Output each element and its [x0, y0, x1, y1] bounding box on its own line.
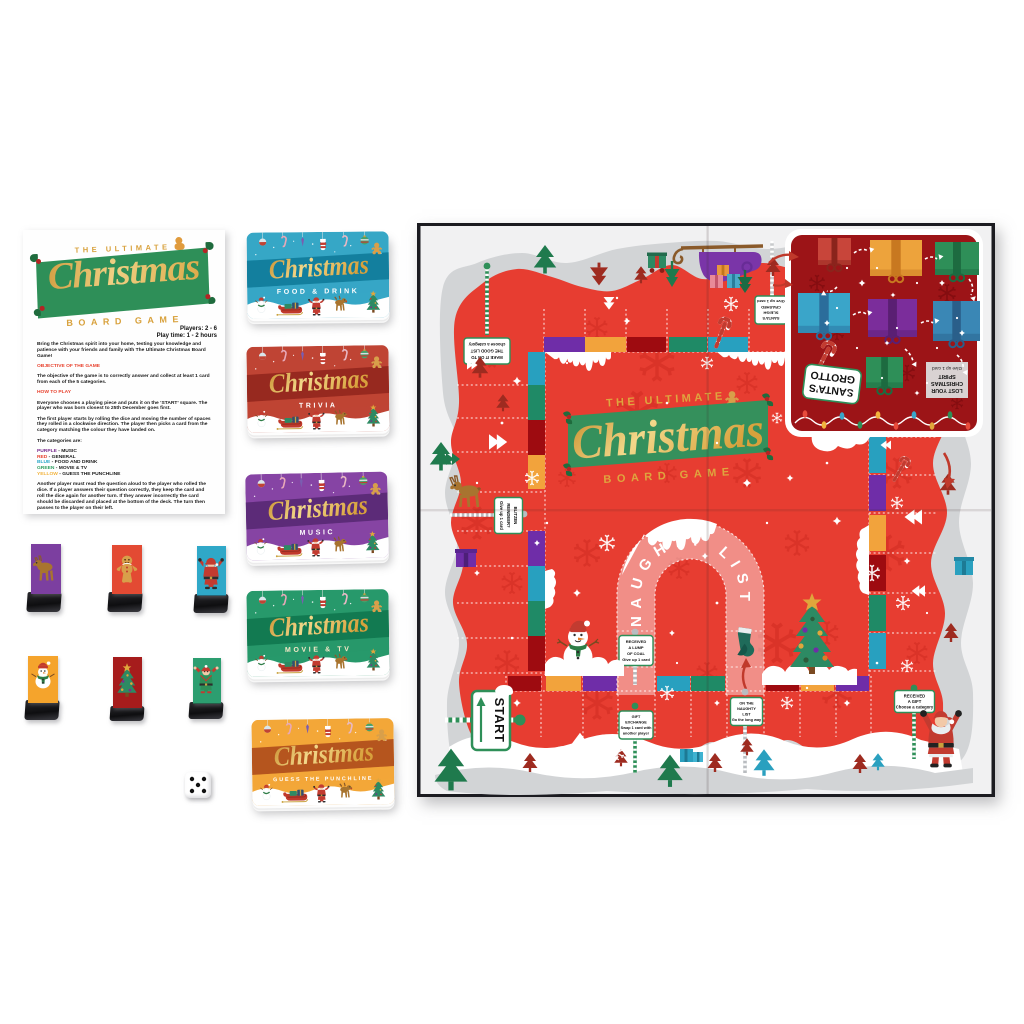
svg-text:Christmas: Christmas — [268, 363, 370, 399]
svg-text:START: START — [492, 698, 507, 743]
svg-text:another player: another player — [623, 732, 650, 736]
svg-text:Give up 1 card: Give up 1 card — [499, 501, 504, 530]
svg-text:LOST YOUR: LOST YOUR — [931, 387, 962, 393]
svg-text:ON THE: ON THE — [739, 701, 754, 705]
svg-text:TRIVIA: TRIVIA — [299, 402, 338, 410]
svg-text:A GIFT: A GIFT — [908, 699, 922, 704]
svg-text:FOOD & DRINK: FOOD & DRINK — [277, 288, 360, 296]
svg-text:MAKE IT ON TO: MAKE IT ON TO — [470, 355, 502, 360]
svg-text:LIST: LIST — [742, 713, 751, 717]
svg-text:THE GOOD LIST: THE GOOD LIST — [470, 349, 503, 354]
svg-text:RECEIVED: RECEIVED — [626, 639, 647, 644]
svg-text:SPIRIT: SPIRIT — [938, 373, 956, 379]
svg-text:Christmas: Christmas — [268, 607, 370, 643]
svg-text:Choose a category: Choose a category — [896, 705, 934, 710]
svg-text:Christmas: Christmas — [273, 736, 375, 772]
svg-text:CHRISTMAS: CHRISTMAS — [931, 380, 963, 386]
svg-text:REINDEER?: REINDEER? — [506, 503, 511, 528]
svg-text:SANTA’S: SANTA’S — [762, 316, 779, 321]
svg-text:Give up 1 card: Give up 1 card — [932, 366, 962, 371]
svg-text:OF COAL: OF COAL — [627, 651, 646, 656]
svg-text:MUSIC: MUSIC — [300, 529, 336, 537]
svg-text:Give up 1 card: Give up 1 card — [757, 299, 785, 304]
svg-text:GIFT: GIFT — [632, 715, 641, 719]
svg-text:NAUGHTY: NAUGHTY — [737, 707, 756, 711]
svg-text:choose a category: choose a category — [468, 342, 505, 347]
svg-text:RECEIVED: RECEIVED — [904, 694, 925, 699]
svg-text:MOVIE & TV: MOVIE & TV — [285, 646, 352, 654]
svg-text:A LUMP: A LUMP — [628, 645, 644, 650]
svg-text:Swap 1 card with: Swap 1 card with — [621, 726, 652, 730]
svg-text:CRASHED: CRASHED — [761, 305, 781, 310]
svg-text:SLEIGH: SLEIGH — [763, 310, 778, 315]
svg-text:Go the long way: Go the long way — [732, 718, 762, 722]
svg-text:EXCHANGE: EXCHANGE — [625, 721, 647, 725]
svg-text:Give up 1 card: Give up 1 card — [622, 657, 650, 662]
svg-text:Christmas: Christmas — [268, 249, 369, 284]
